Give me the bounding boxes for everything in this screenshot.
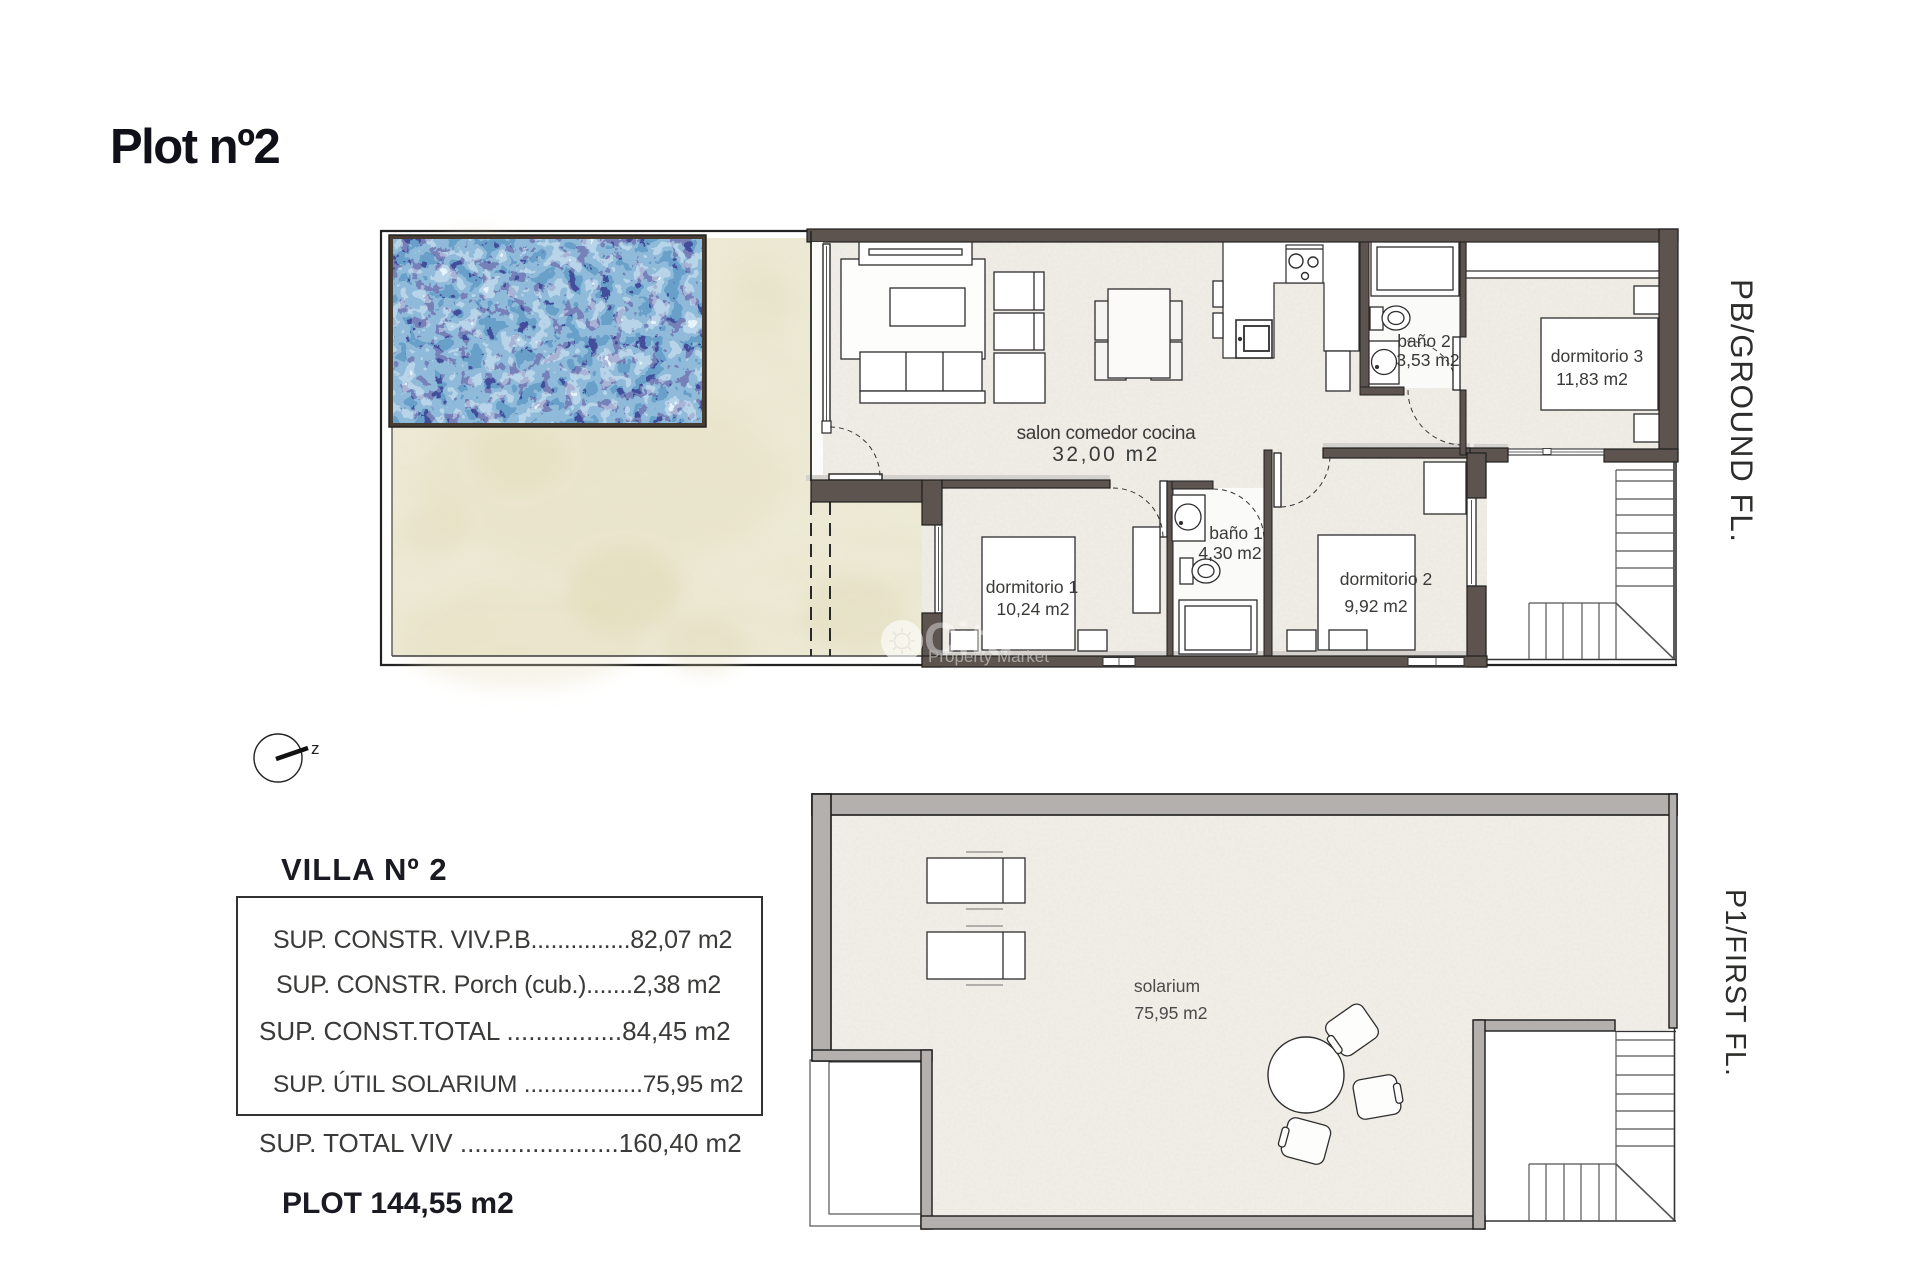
- svg-text:baño 1: baño 1: [1209, 523, 1263, 543]
- svg-text:11,83 m2: 11,83 m2: [1556, 369, 1628, 389]
- svg-text:9,92 m2: 9,92 m2: [1344, 596, 1407, 616]
- svg-text:4,30 m2: 4,30 m2: [1198, 543, 1261, 563]
- svg-text:VILLA Nº 2: VILLA Nº 2: [281, 852, 448, 887]
- svg-text:3,53 m2: 3,53 m2: [1396, 350, 1459, 370]
- svg-text:SUP. CONSTR. Porch (cub.).....: SUP. CONSTR. Porch (cub.).......2,38 m2: [276, 971, 721, 999]
- svg-text:SUP. ÚTIL SOLARIUM ...........: SUP. ÚTIL SOLARIUM ..................75,…: [273, 1071, 743, 1098]
- svg-text:dormitorio 3: dormitorio 3: [1551, 346, 1643, 366]
- svg-text:Property Market: Property Market: [928, 647, 1049, 666]
- svg-text:SUP. CONSTR. VIV.P.B..........: SUP. CONSTR. VIV.P.B...............82,07…: [273, 926, 732, 954]
- svg-text:PB/GROUND FL.: PB/GROUND FL.: [1724, 279, 1760, 544]
- svg-text:dormitorio 2: dormitorio 2: [1340, 569, 1432, 589]
- svg-text:salon comedor cocina: salon comedor cocina: [1017, 423, 1197, 444]
- svg-text:75,95 m2: 75,95 m2: [1135, 1003, 1208, 1023]
- svg-text:z: z: [311, 739, 320, 758]
- svg-text:P1/FIRST FL.: P1/FIRST FL.: [1719, 889, 1751, 1077]
- svg-text:SUP. CONST.TOTAL .............: SUP. CONST.TOTAL ................84,45 m…: [259, 1016, 731, 1046]
- svg-text:solarium: solarium: [1134, 976, 1200, 996]
- svg-text:Plot nº2: Plot nº2: [110, 120, 279, 174]
- svg-text:32,00 m2: 32,00 m2: [1052, 443, 1160, 466]
- svg-text:PLOT 144,55 m2: PLOT 144,55 m2: [282, 1187, 514, 1220]
- svg-text:baño 2: baño 2: [1397, 331, 1451, 351]
- svg-text:dormitorio 1: dormitorio 1: [986, 577, 1078, 597]
- svg-text:SUP. TOTAL VIV ...............: SUP. TOTAL VIV ......................160…: [259, 1128, 742, 1158]
